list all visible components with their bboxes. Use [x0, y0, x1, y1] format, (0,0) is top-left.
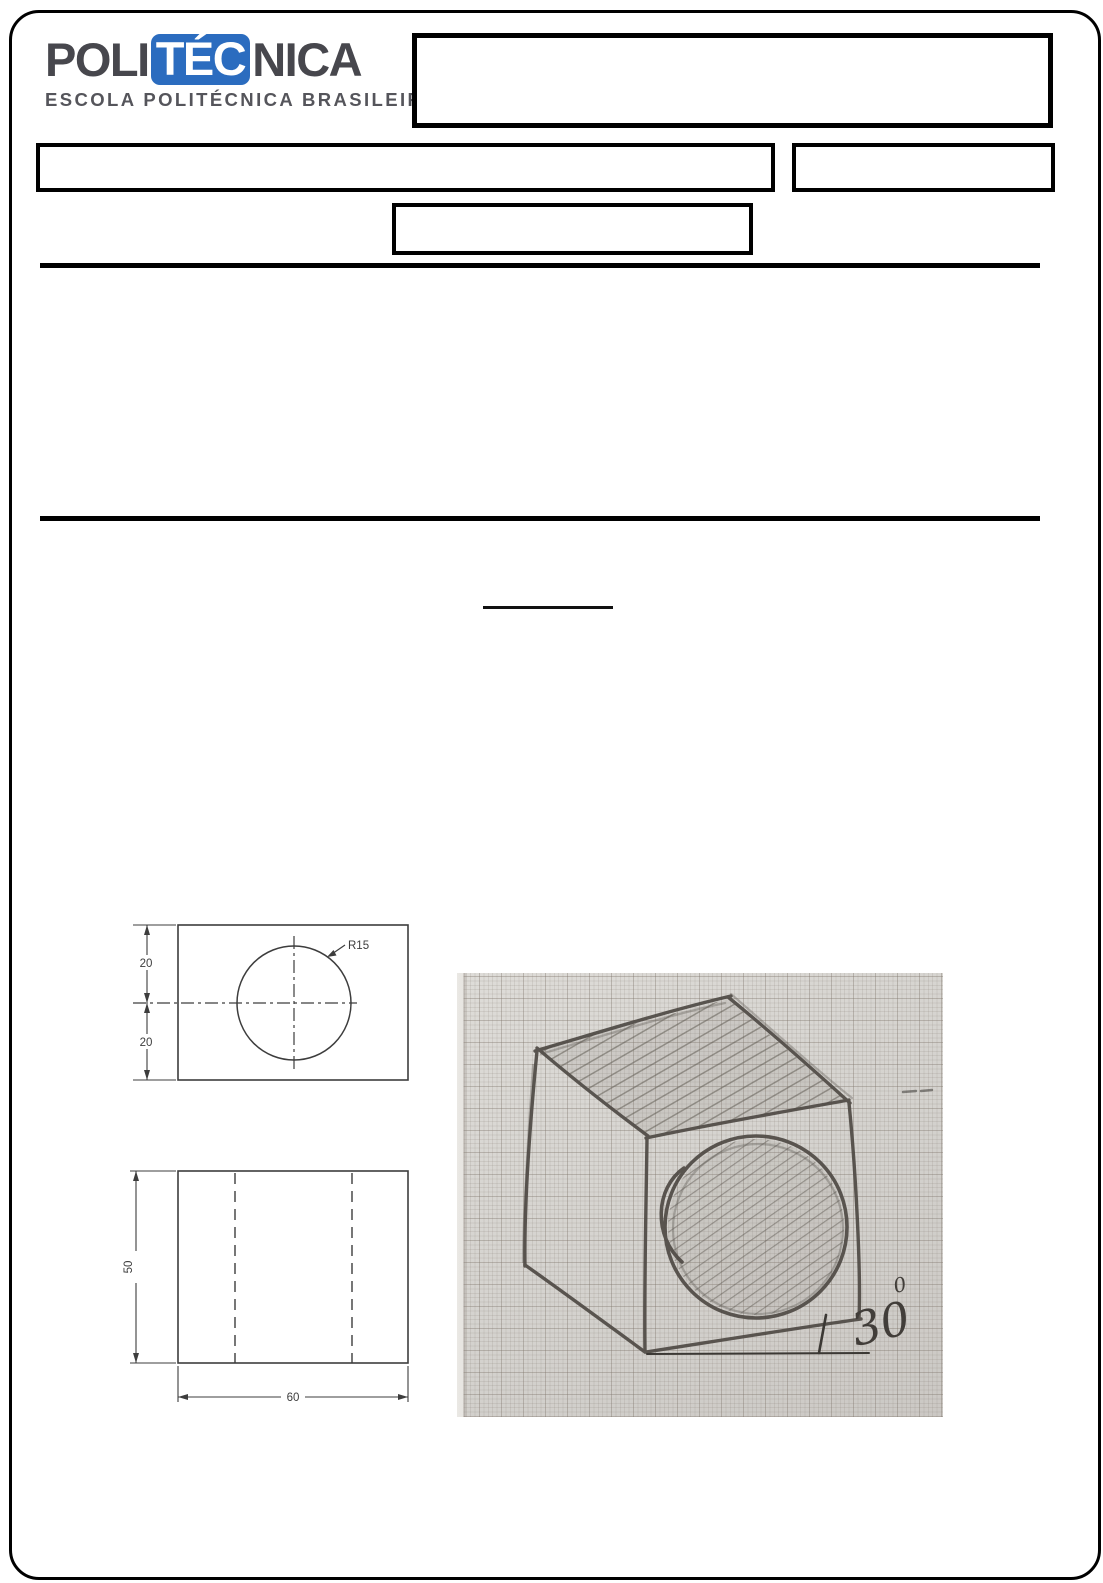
isometric-sketch-photo: 30 0	[457, 973, 943, 1417]
subject-fill-in-box	[392, 203, 753, 255]
cube-edge-bottom-right	[646, 1319, 861, 1352]
cube-edge-bottom-left	[525, 1265, 645, 1352]
angle-value-text: 30	[846, 1290, 916, 1357]
dim-arrow-down	[133, 1353, 139, 1363]
angle-label: 30 0	[841, 1272, 921, 1357]
dim-arrow-right	[398, 1394, 408, 1400]
dim-arrow-up	[133, 1171, 139, 1181]
logo-word-part3: NICA	[252, 34, 361, 86]
logo-word-part1: POLI	[45, 34, 149, 86]
cube-top-face-shading	[539, 999, 847, 1136]
date-fill-in-box	[792, 143, 1055, 192]
dim-arrow-up	[144, 925, 150, 935]
front-view	[130, 1171, 408, 1402]
dim-arrow-left	[178, 1394, 188, 1400]
dim-arrow-down2	[144, 1070, 150, 1080]
header-fill-in-box	[412, 33, 1053, 128]
title-underline	[483, 606, 613, 609]
dim-label-20-upper: 20	[140, 958, 153, 970]
document-page: { "page": { "background": "#ffffff", "bo…	[0, 0, 1103, 1583]
stray-pencil-dashes	[903, 1090, 932, 1092]
top-view-labels: 20 20 R15	[137, 940, 369, 1049]
logo-subtitle: ESCOLA POLITÉCNICA BRASILEIRA	[45, 89, 405, 111]
horizontal-rule-top	[40, 263, 1040, 268]
pencil-sketch: 30 0	[457, 973, 943, 1417]
logo-wordmark: POLITÉCNICA	[45, 34, 405, 86]
dim-label-50: 50	[123, 1261, 135, 1274]
dim-label-20-lower: 20	[140, 1037, 153, 1049]
horizontal-rule-bottom	[40, 516, 1040, 521]
angle-tick-line	[819, 1315, 826, 1353]
radius-label-r15: R15	[348, 940, 369, 952]
front-view-arrows	[133, 1171, 408, 1400]
front-view-outline	[178, 1171, 408, 1363]
school-logo: POLITÉCNICA ESCOLA POLITÉCNICA BRASILEIR…	[45, 34, 405, 111]
dim-label-60: 60	[287, 1392, 300, 1404]
angle-baseline	[647, 1353, 869, 1354]
front-view-labels: 50 60	[123, 1251, 305, 1404]
cube-edge-front	[645, 1139, 647, 1352]
name-fill-in-box	[36, 143, 775, 192]
dim-arrow-down	[144, 993, 150, 1003]
dim-arrow-up2	[144, 1003, 150, 1013]
orthographic-views-drawing: 20 20 R15 50 60	[110, 890, 450, 1420]
logo-tec-badge: TÉC	[151, 34, 251, 85]
leader-arrowhead	[327, 950, 337, 957]
cube-edge-right	[849, 1103, 859, 1319]
